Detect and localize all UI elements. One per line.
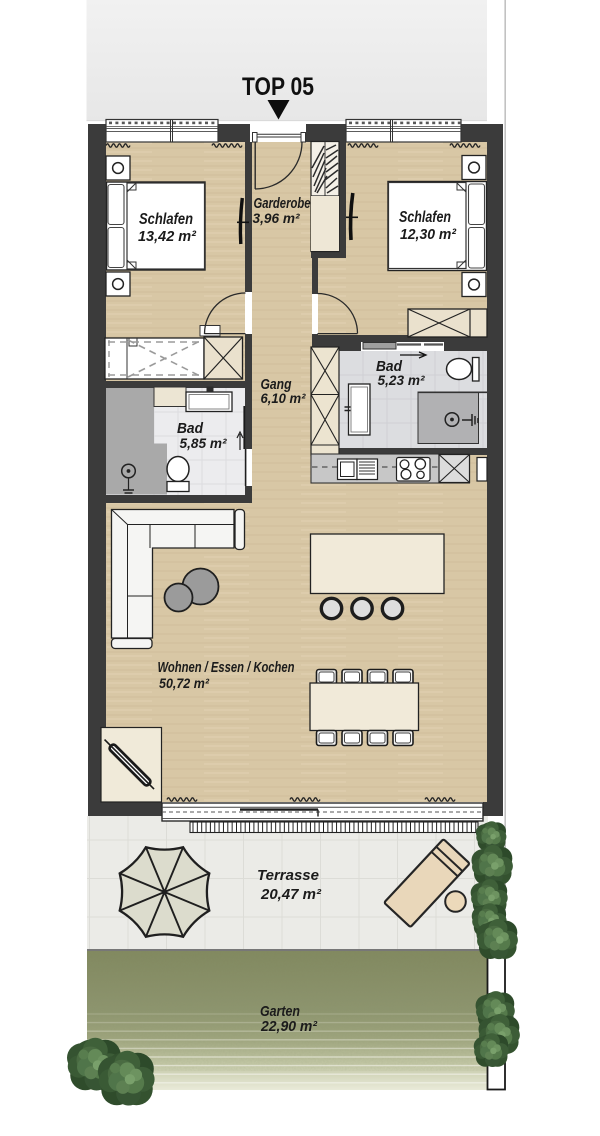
svg-text:20,47 m²: 20,47 m²: [260, 887, 322, 903]
svg-text:Schlafen: Schlafen: [139, 211, 193, 228]
svg-text:5,23 m²: 5,23 m²: [378, 372, 425, 388]
svg-text:Schlafen: Schlafen: [399, 209, 451, 226]
svg-text:22,90 m²: 22,90 m²: [260, 1019, 318, 1035]
svg-text:6,10 m²: 6,10 m²: [261, 390, 306, 406]
svg-text:Wohnen / Essen / Kochen: Wohnen / Essen / Kochen: [158, 660, 295, 676]
svg-text:Garten: Garten: [260, 1003, 300, 1020]
svg-text:50,72 m²: 50,72 m²: [159, 675, 209, 691]
svg-text:5,85 m²: 5,85 m²: [180, 435, 227, 451]
svg-text:13,42 m²: 13,42 m²: [138, 228, 197, 245]
svg-text:12,30 m²: 12,30 m²: [400, 226, 457, 243]
svg-text:Terrasse: Terrasse: [257, 867, 319, 884]
svg-text:3,96 m²: 3,96 m²: [253, 210, 300, 226]
svg-text:TOP 05: TOP 05: [242, 73, 314, 101]
